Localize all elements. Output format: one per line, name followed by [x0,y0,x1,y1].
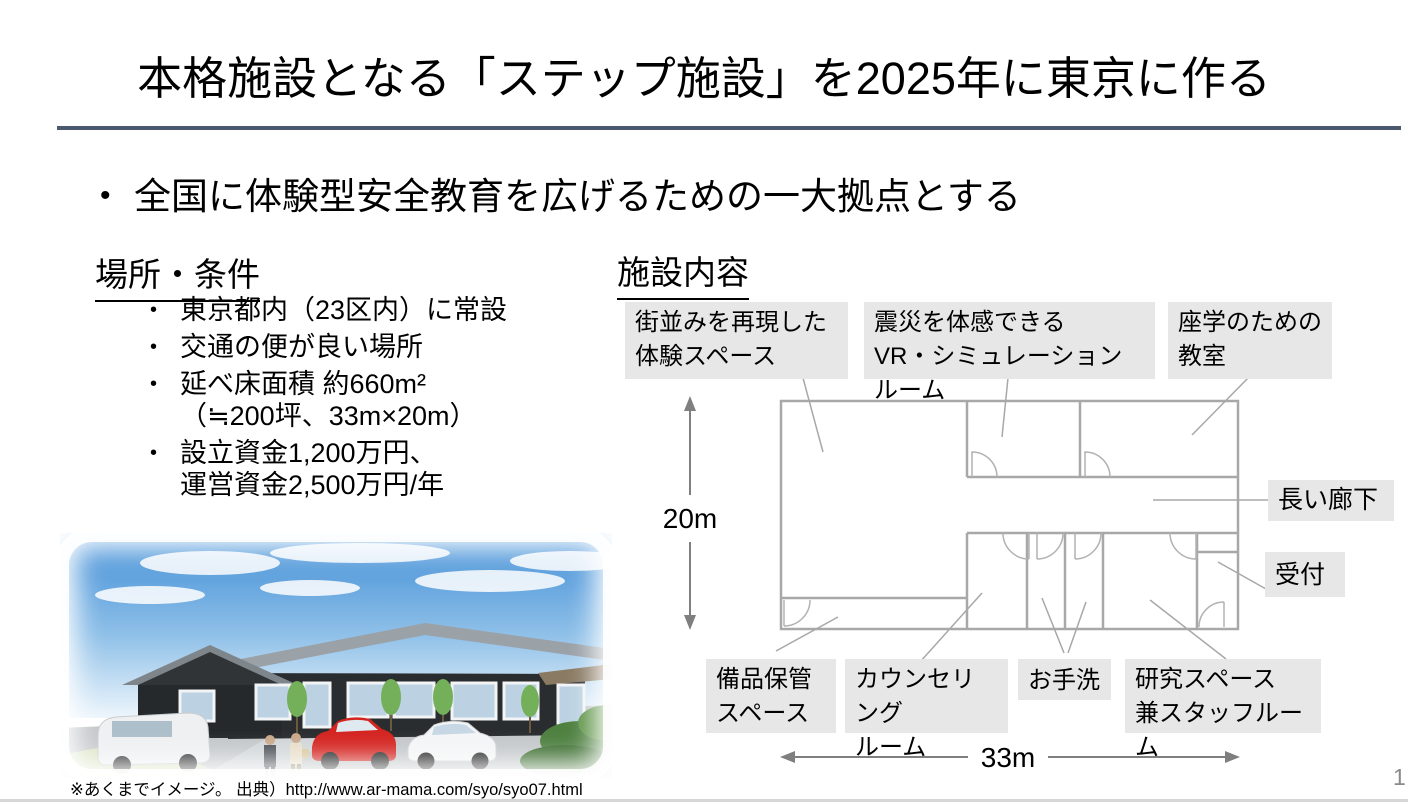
bullet-icon: • [150,368,180,432]
main-bullet: •全国に体験型安全教育を広げるための一大拠点とする [100,166,1021,220]
height-dimension-label: 20m [663,503,717,534]
list-item-continuation: 運営資金2,500万円/年 [180,469,444,501]
room-label-reception: 受付 [1265,552,1345,597]
building-rendering-image [60,533,612,778]
floor-plan-walls [781,401,1238,629]
bullet-icon: • [100,179,134,213]
width-dimension-label: 33m [981,742,1035,773]
list-item-text: 延べ床面積 約660m² [180,368,477,400]
room-label-experience-space: 街並みを再現した 体験スペース [625,302,848,379]
page-number: 1 [1393,764,1406,791]
title-divider [57,126,1401,130]
width-dimension-arrow: 33m [780,742,1240,773]
list-item: • 交通の便が良い場所 [150,331,620,363]
page-title: 本格施設となる「ステップ施設」を2025年に東京に作る [0,42,1408,107]
room-label-vr-simulation-room: 震災を体感できる VR・シミュレーションルーム [864,302,1155,379]
list-item-text: 東京都内（23区内）に常設 [180,294,507,326]
list-item-continuation: （≒200坪、33m×20m） [180,400,477,432]
room-label-storage-space: 備品保管 スペース [706,659,836,733]
bullet-icon: • [150,331,180,363]
bottom-divider [0,799,1408,802]
list-item-text: 設立資金1,200万円、 [180,437,444,469]
room-label-corridor: 長い廊下 [1268,480,1394,521]
main-bullet-text: 全国に体験型安全教育を広げるための一大拠点とする [134,176,1021,217]
label-pointer-line [776,376,1268,662]
list-item: • 東京都内（23区内）に常設 [150,294,620,326]
location-conditions-list: • 東京都内（23区内）に常設 • 交通の便が良い場所 • 延べ床面積 約660… [150,294,620,506]
bullet-icon: • [150,294,180,326]
bullet-icon: • [150,437,180,501]
list-item: • 設立資金1,200万円、運営資金2,500万円/年 [150,437,620,501]
room-label-toilet: お手洗 [1018,659,1111,700]
list-item: • 延べ床面積 約660m²（≒200坪、33m×20m） [150,368,620,432]
source-footnote: ※あくまでイメージ。 出典）http://www.ar-mama.com/syo… [70,776,583,800]
list-item-text: 交通の便が良い場所 [180,331,423,363]
room-label-classroom: 座学のための 教室 [1168,302,1332,379]
room-label-research-staff-room: 研究スペース 兼スタッフルーム [1125,659,1321,733]
building-illustration [60,533,612,778]
height-dimension-arrow: 20m [663,396,717,630]
presentation-slide: 本格施設となる「ステップ施設」を2025年に東京に作る •全国に体験型安全教育を… [0,0,1408,805]
room-label-counseling-room: カウンセリング ルーム [845,659,1008,733]
